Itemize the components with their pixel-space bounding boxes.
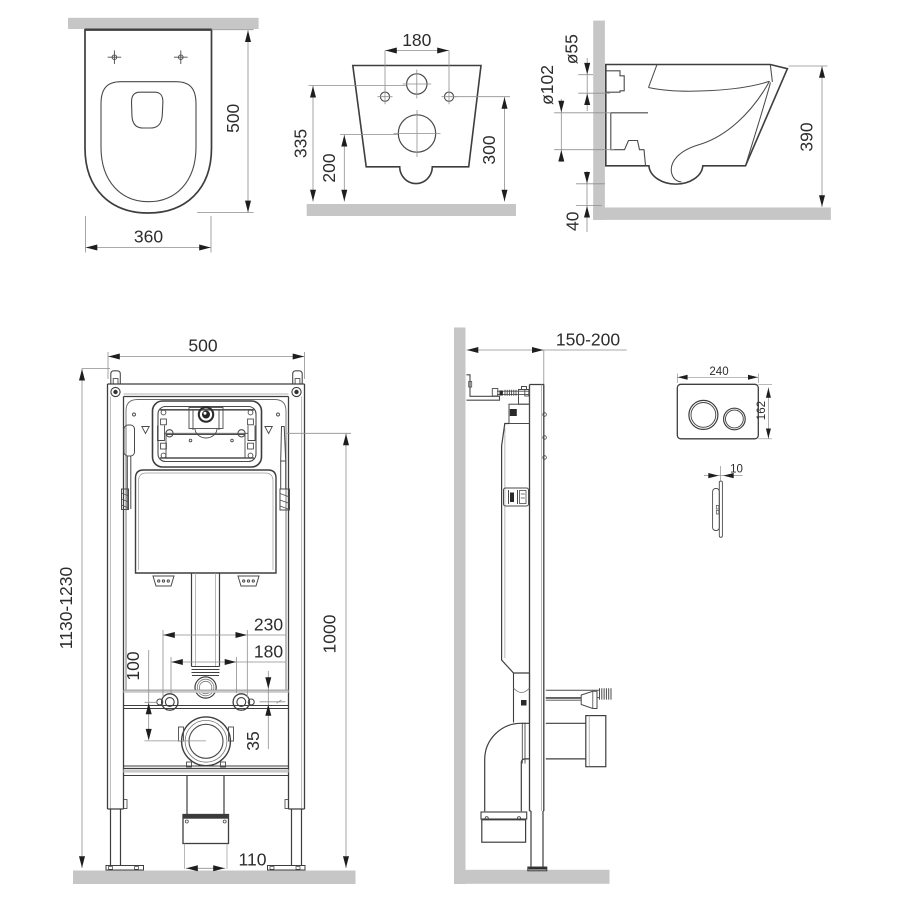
svg-text:300: 300 — [479, 135, 499, 164]
svg-text:ø102: ø102 — [537, 65, 557, 105]
svg-text:1000: 1000 — [320, 614, 340, 653]
svg-text:150-200: 150-200 — [556, 330, 620, 350]
svg-text:360: 360 — [134, 227, 163, 247]
svg-text:1130-1230: 1130-1230 — [56, 567, 76, 650]
svg-text:240: 240 — [709, 366, 728, 378]
svg-text:500: 500 — [188, 336, 217, 356]
svg-text:390: 390 — [797, 122, 817, 151]
svg-text:10: 10 — [730, 464, 743, 476]
svg-text:230: 230 — [254, 615, 283, 635]
svg-text:200: 200 — [319, 153, 339, 182]
svg-text:162: 162 — [756, 401, 768, 420]
svg-text:180: 180 — [402, 30, 431, 50]
svg-text:500: 500 — [223, 103, 243, 132]
svg-text:40: 40 — [563, 211, 583, 231]
svg-text:180: 180 — [254, 642, 283, 662]
svg-text:110: 110 — [239, 850, 267, 870]
svg-text:335: 335 — [291, 129, 311, 158]
svg-text:ø55: ø55 — [562, 34, 582, 64]
svg-text:35: 35 — [243, 731, 263, 750]
svg-text:100: 100 — [123, 651, 143, 680]
